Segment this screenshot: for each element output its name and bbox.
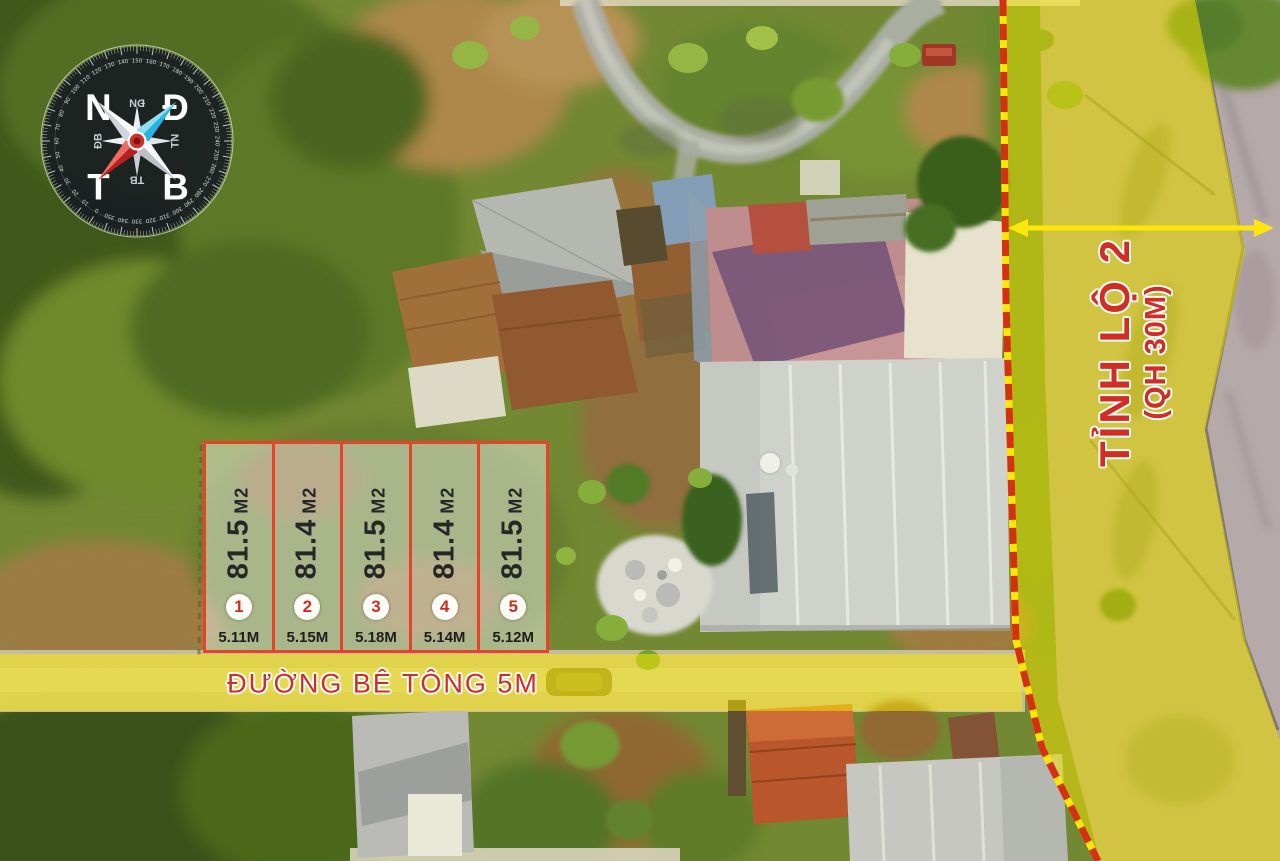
plot-area-unit: M2 (506, 486, 526, 513)
plot: 81.5M2 3 5.18M (340, 444, 409, 650)
plot: 81.4M2 4 5.14M (409, 444, 478, 650)
plot-area-label: 81.4M2 (291, 486, 324, 578)
plot-number: 4 (432, 594, 458, 620)
road-bottom-label: ĐƯỜNG BÊ TÔNG 5M (227, 669, 539, 700)
plot: 81.5M2 5 5.12M (477, 444, 546, 650)
land-plot-ad: ĐƯỜNG BÊ TÔNG 5M TỈNH LỘ 2 (QH 30M) 81.5… (0, 0, 1280, 861)
plot-number: 5 (500, 594, 526, 620)
compass-needle (98, 102, 176, 180)
plot-frontage: 5.14M (412, 629, 478, 646)
plot-area-unit: M2 (368, 486, 388, 513)
road-right-label: TỈNH LỘ 2 (QH 30M) (1093, 237, 1173, 467)
plot-number: 2 (294, 594, 320, 620)
compass-cardinal-d: Đ (162, 87, 188, 128)
plot-frontage: 5.15M (275, 629, 341, 646)
plot-frontage: 5.18M (343, 629, 409, 646)
svg-text:60: 60 (54, 137, 60, 144)
plot: 81.5M2 1 5.11M (206, 444, 272, 650)
plot-area-value: 81.4 (291, 518, 323, 578)
plot-area-unit: M2 (437, 486, 457, 513)
svg-text:150: 150 (132, 58, 143, 64)
plot-area-value: 81.5 (222, 518, 254, 578)
compass: 1501601701801902002102202302402502602702… (38, 42, 236, 240)
plot-area-label: 81.5M2 (222, 486, 255, 578)
plot-area-label: 81.5M2 (497, 486, 530, 578)
plot-area-value: 81.4 (428, 518, 460, 578)
plot-area-label: 81.5M2 (359, 486, 392, 578)
plot-number: 3 (363, 594, 389, 620)
plot-area-unit: M2 (231, 486, 251, 513)
plot-frontage: 5.11M (206, 629, 272, 646)
plot-area-value: 81.5 (359, 518, 391, 578)
plot-area-value: 81.5 (497, 518, 529, 578)
road-right-name: TỈNH LỘ 2 (1093, 237, 1137, 467)
compass-cardinal-n: N (85, 87, 111, 128)
plot-area-label: 81.4M2 (428, 486, 461, 578)
plot: 81.4M2 2 5.15M (272, 444, 341, 650)
road-right-plan: (QH 30M) (1140, 237, 1173, 467)
plot-frontage: 5.12M (480, 629, 546, 646)
svg-text:240: 240 (214, 136, 220, 147)
plots: 81.5M2 1 5.11M 81.4M2 2 5.15M 81.5M2 3 5… (203, 441, 549, 653)
plot-area-unit: M2 (300, 486, 320, 513)
plot-number: 1 (226, 594, 252, 620)
svg-text:330: 330 (131, 218, 142, 224)
